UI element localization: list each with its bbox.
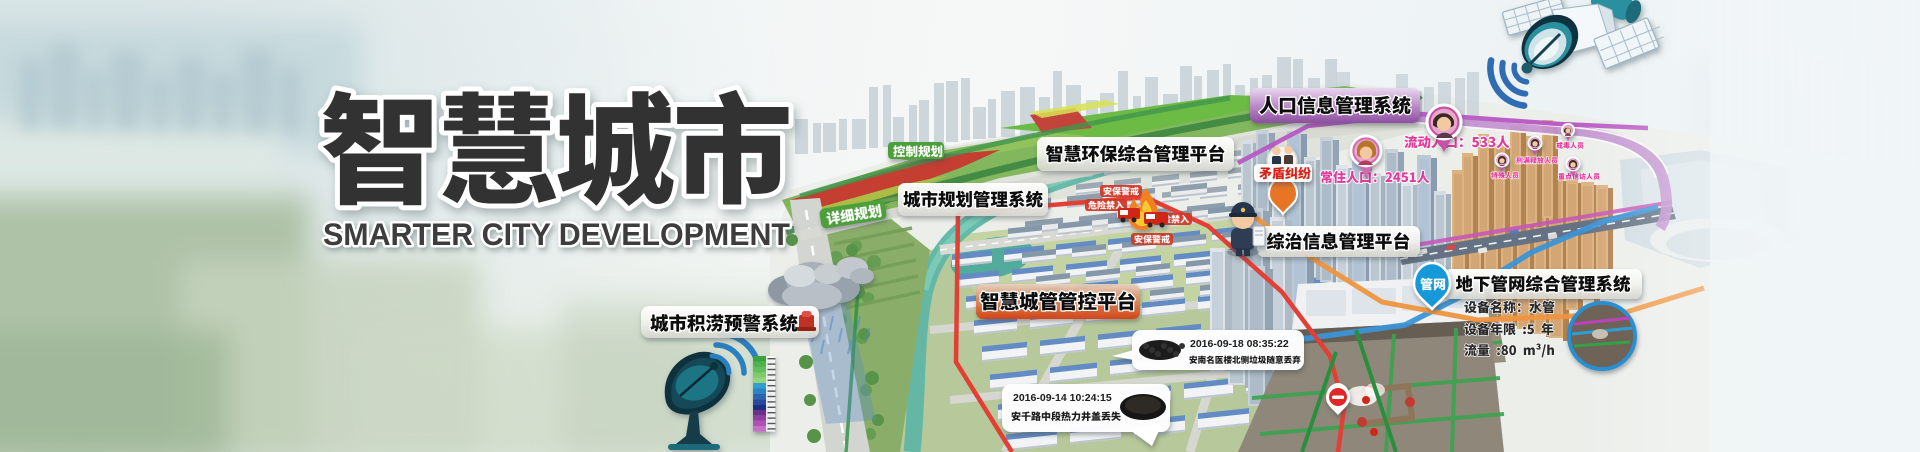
svg-text:SMARTER CITY DEVELOPMENT: SMARTER CITY DEVELOPMENT xyxy=(323,216,790,252)
svg-text:2016-09-18 08:35:22: 2016-09-18 08:35:22 xyxy=(1190,338,1289,350)
svg-text:2016-09-14 10:24:15: 2016-09-14 10:24:15 xyxy=(1013,392,1112,404)
